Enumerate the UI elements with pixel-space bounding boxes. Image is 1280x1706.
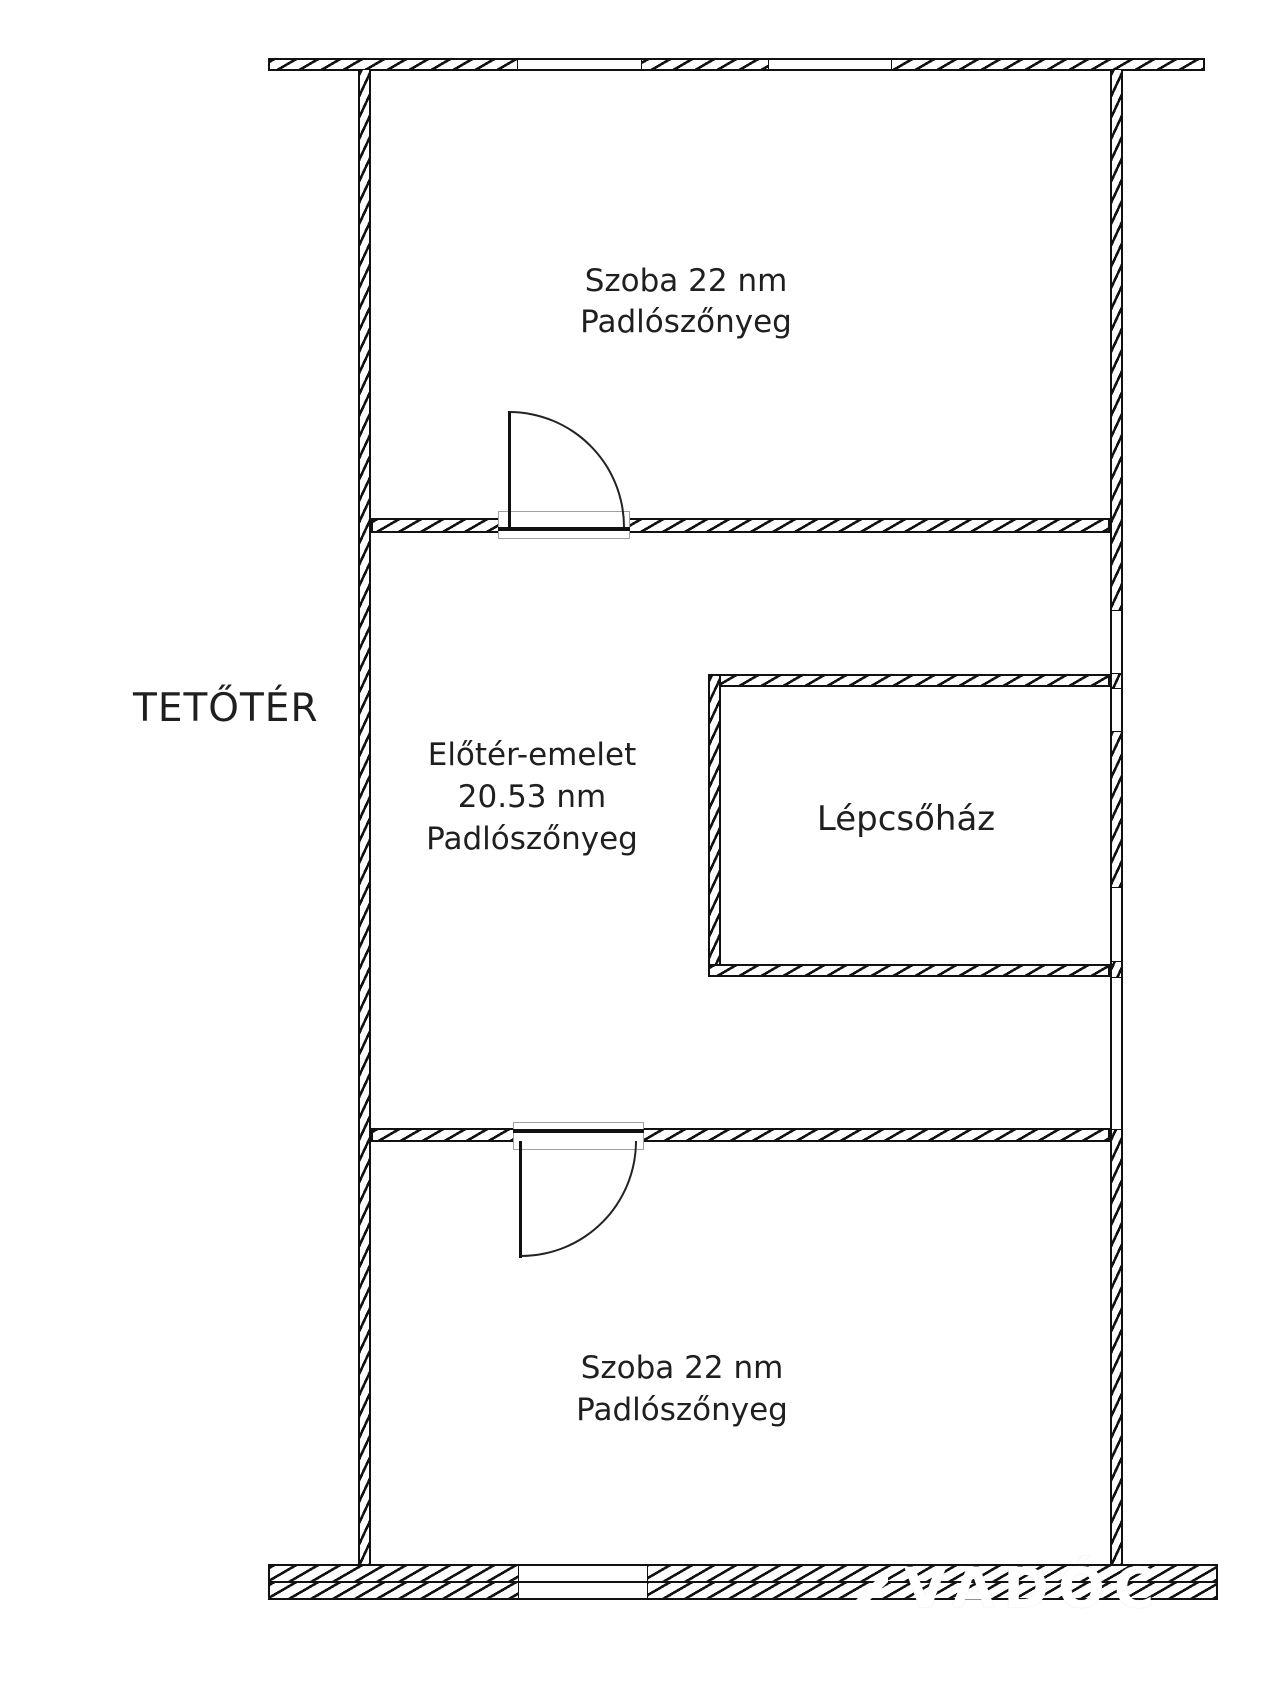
room-name: Szoba 22 nm <box>580 261 792 302</box>
door-sill <box>498 527 630 531</box>
room-floor: Padlószőnyeg <box>580 302 792 343</box>
interior-wall-upper <box>371 518 1110 533</box>
window-opening <box>1112 688 1121 732</box>
window-opening <box>518 1583 648 1598</box>
window-opening <box>1112 887 1121 962</box>
wall-left <box>358 70 371 1566</box>
interior-wall-lower <box>371 1128 1110 1142</box>
watermark-logo-icon <box>848 1568 888 1608</box>
staircase-wall-top <box>708 674 1110 687</box>
door-sill <box>513 1129 644 1133</box>
floor-area-label: TETŐTÉR <box>133 686 319 731</box>
room-floor: Padlószőnyeg <box>576 1389 788 1431</box>
window-opening <box>1112 610 1121 674</box>
staircase-enclosure <box>708 674 1110 977</box>
window-opening <box>517 60 642 69</box>
room-bottom-label: Szoba 22 nm Padlószőnyeg <box>576 1347 788 1431</box>
window-opening <box>1112 977 1121 1130</box>
hall-label: Előtér-emelet 20.53 nm Padlószőnyeg <box>426 734 638 860</box>
room-name: Szoba 22 nm <box>576 1347 788 1389</box>
staircase-wall-bottom <box>708 964 1110 977</box>
door-swing-arc <box>509 411 625 527</box>
wall-top <box>268 58 1205 71</box>
watermark-text: VADÓC <box>904 1556 1163 1620</box>
room-area: 20.53 nm <box>426 776 638 818</box>
staircase-wall-left <box>708 674 721 977</box>
floor-plan: TETŐTÉR Szoba 22 nm Padlószőnyeg Előtér-… <box>0 0 1280 1706</box>
room-top-label: Szoba 22 nm Padlószőnyeg <box>580 261 792 343</box>
room-name: Előtér-emelet <box>426 734 638 776</box>
window-opening <box>518 1566 648 1581</box>
watermark: VADÓC <box>848 1556 1163 1620</box>
wall-right <box>1110 70 1123 1566</box>
room-floor: Padlószőnyeg <box>426 818 638 860</box>
window-opening <box>768 60 892 69</box>
door-swing-arc <box>521 1141 637 1257</box>
